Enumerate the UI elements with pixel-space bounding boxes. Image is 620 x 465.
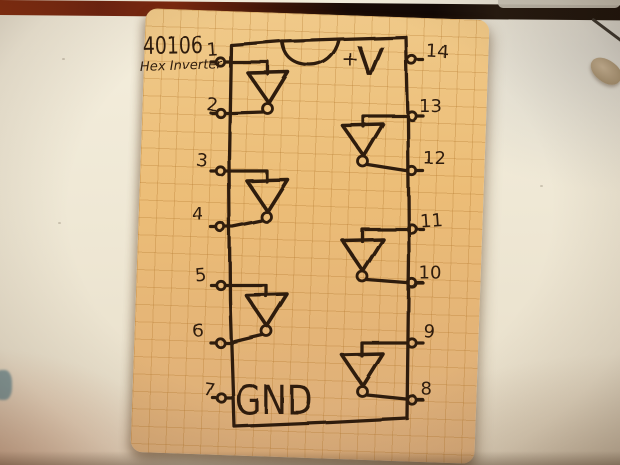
pin-terminal-icon (408, 225, 416, 233)
pin-terminal-icon (408, 279, 416, 287)
pin-8: 8 (408, 379, 433, 404)
pin-number: 11 (419, 209, 443, 232)
inverter-gate-9-8 (342, 343, 406, 399)
pin-10: 10 (408, 263, 442, 287)
hand-drawn-schematic: 1 2 3 4 5 (0, 0, 620, 465)
pin-terminal-icon (408, 112, 416, 120)
inverter-triangle-icon (342, 239, 383, 271)
inverter-gate-13-12 (342, 116, 406, 171)
gate-output-wire (233, 221, 262, 227)
pin-number: 14 (426, 41, 450, 63)
ic-notch-icon (282, 40, 339, 65)
part-name-label: Hex Inverter (140, 57, 224, 75)
pin-number: 5 (194, 264, 207, 286)
pin-number: 12 (423, 148, 446, 169)
pin-terminal-icon (216, 167, 224, 175)
inverter-triangle-icon (342, 124, 383, 156)
pin-13: 13 (408, 96, 442, 120)
gate-output-wire (233, 335, 262, 342)
pin-terminal-icon (216, 109, 224, 117)
pin-2: 2 (205, 94, 232, 117)
part-number-label: 40106 (143, 31, 203, 60)
pin-number: 9 (423, 321, 436, 343)
pin-terminal-icon (216, 223, 224, 231)
pin-3: 3 (196, 150, 232, 175)
pin-11: 11 (408, 209, 443, 233)
pin-6: 6 (193, 321, 232, 347)
inverter-triangle-icon (248, 72, 288, 103)
pin-number: 13 (419, 96, 442, 117)
gate-output-wire (233, 112, 263, 113)
pin-terminal-icon (216, 281, 224, 289)
pin-number: 4 (192, 204, 203, 225)
inverter-triangle-icon (342, 354, 383, 386)
gate-output-wire (367, 280, 406, 283)
pin-9: 9 (408, 321, 436, 347)
power-v-label: V (356, 39, 386, 86)
inverter-gate-1-2 (233, 62, 288, 114)
pin-14: 14 (408, 41, 450, 64)
gate-output-wire (367, 395, 406, 399)
pin-number: 10 (419, 263, 442, 284)
pin-terminal-icon (408, 167, 416, 175)
pin-12: 12 (408, 148, 446, 175)
pin-number: 2 (205, 94, 219, 116)
pin-terminal-icon (217, 394, 225, 402)
pin-number: 8 (421, 379, 432, 400)
photo-of-schematic: 1 2 3 4 5 (0, 0, 620, 465)
pin-terminal-icon (408, 56, 416, 64)
pin-number: 3 (196, 150, 209, 172)
inverter-triangle-icon (246, 294, 287, 326)
pin-number: 6 (193, 321, 204, 342)
inverter-gate-11-10 (342, 229, 406, 283)
pin-terminal-icon (408, 339, 416, 347)
gate-output-wire (368, 165, 406, 171)
pin-5: 5 (194, 264, 232, 289)
pin-4: 4 (192, 204, 232, 231)
inverter-gate-5-6 (233, 285, 287, 342)
ic-body-outline (229, 37, 409, 426)
inverter-gate-3-4 (233, 171, 288, 227)
ground-label: GND (235, 378, 313, 424)
inverter-triangle-icon (247, 180, 288, 212)
pin-terminal-icon (408, 396, 416, 404)
pin-terminal-icon (216, 339, 224, 347)
pin-7: 7 (202, 379, 233, 402)
